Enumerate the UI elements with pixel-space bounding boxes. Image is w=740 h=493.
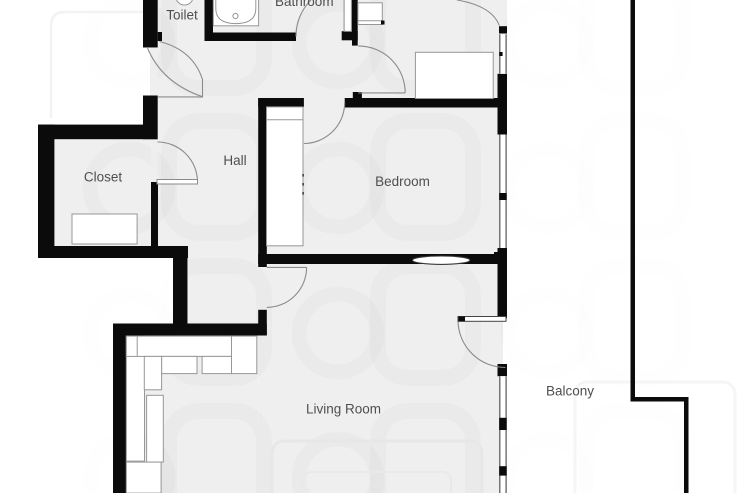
svg-text:Living Room: Living Room [306, 402, 381, 417]
svg-text:Toilet: Toilet [166, 8, 198, 23]
svg-text:Closet: Closet [84, 170, 123, 185]
svg-text:Balcony: Balcony [546, 384, 594, 399]
svg-text:Bathroom: Bathroom [275, 0, 334, 9]
svg-text:Bedroom: Bedroom [375, 174, 430, 189]
svg-text:Hall: Hall [223, 153, 246, 168]
